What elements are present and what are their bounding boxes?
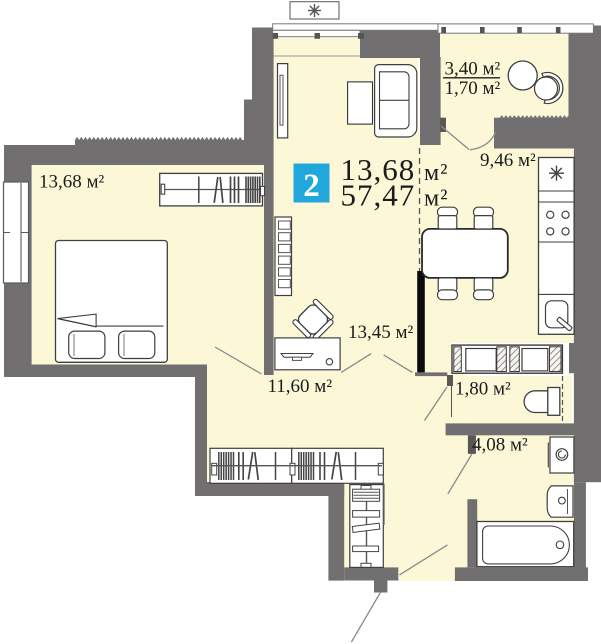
svg-text:2: 2 xyxy=(303,168,320,204)
svg-text:9,46 м²: 9,46 м² xyxy=(480,150,536,171)
svg-text:13,45 м²: 13,45 м² xyxy=(348,322,414,343)
svg-text:13,68 м²: 13,68 м² xyxy=(39,172,105,193)
svg-text:4,08 м²: 4,08 м² xyxy=(472,435,528,456)
svg-text:1,70 м²: 1,70 м² xyxy=(445,78,501,99)
svg-text:1,80 м²: 1,80 м² xyxy=(455,379,511,400)
svg-text:3,40 м²: 3,40 м² xyxy=(445,59,501,80)
svg-text:11,60 м²: 11,60 м² xyxy=(268,376,333,397)
